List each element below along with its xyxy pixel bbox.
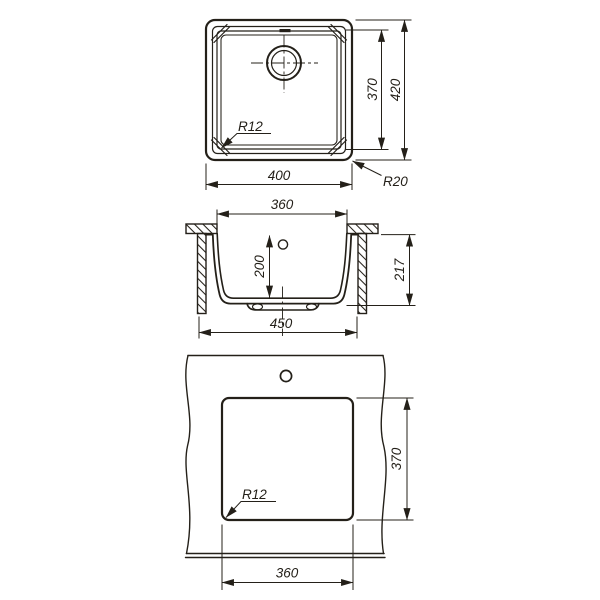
cutout-radius-text: R12: [242, 487, 267, 502]
dimension-text: 420: [388, 78, 403, 101]
dimension-text: 217: [392, 258, 407, 282]
overflow-notch-mark: [280, 29, 291, 32]
dimension-text: 200: [252, 255, 267, 279]
dimension-text: 370: [365, 78, 380, 101]
cabinet-wall-right: [358, 234, 367, 314]
canvas-background: [0, 0, 600, 600]
outer-radius-text: R20: [383, 174, 408, 189]
dimension-text: 360: [276, 566, 299, 581]
drawing-canvas: R12 R20 400 370 420 360: [0, 0, 600, 600]
countertop-slab-right: [347, 224, 378, 234]
sink-technical-drawing: R12 R20 400 370 420 360: [0, 0, 600, 600]
inner-radius-text: R12: [238, 119, 263, 134]
dimension-text: 370: [389, 447, 404, 470]
cabinet-wall-left: [198, 234, 207, 314]
dimension-text: 360: [271, 197, 294, 212]
dimension-text: 400: [268, 168, 291, 183]
countertop-slab-left: [186, 224, 217, 234]
dimension-text: 450: [270, 316, 293, 331]
